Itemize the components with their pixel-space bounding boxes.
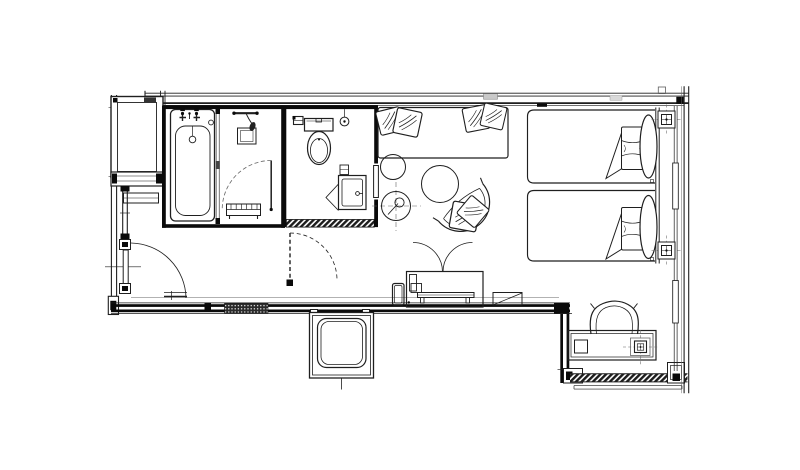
decor-pillow: [393, 108, 423, 138]
wall-tag: [484, 94, 498, 100]
wardrobe: [111, 97, 163, 178]
toilet-tank: [305, 119, 334, 132]
window-hatch-band: [225, 303, 269, 313]
toilet-room-door-panel[interactable]: [374, 166, 379, 198]
storage-box: [111, 172, 163, 186]
canvas-background: [0, 0, 800, 470]
window-mullion: [673, 163, 679, 209]
decor-pillow: [480, 103, 507, 130]
wall-tag-2: [610, 96, 622, 100]
bay-column: [310, 310, 374, 390]
window-mullion: [673, 281, 679, 324]
floor-plan-canvas: [0, 0, 800, 470]
door-leaf: [123, 250, 128, 284]
floor-plan-drawing: [0, 0, 800, 470]
